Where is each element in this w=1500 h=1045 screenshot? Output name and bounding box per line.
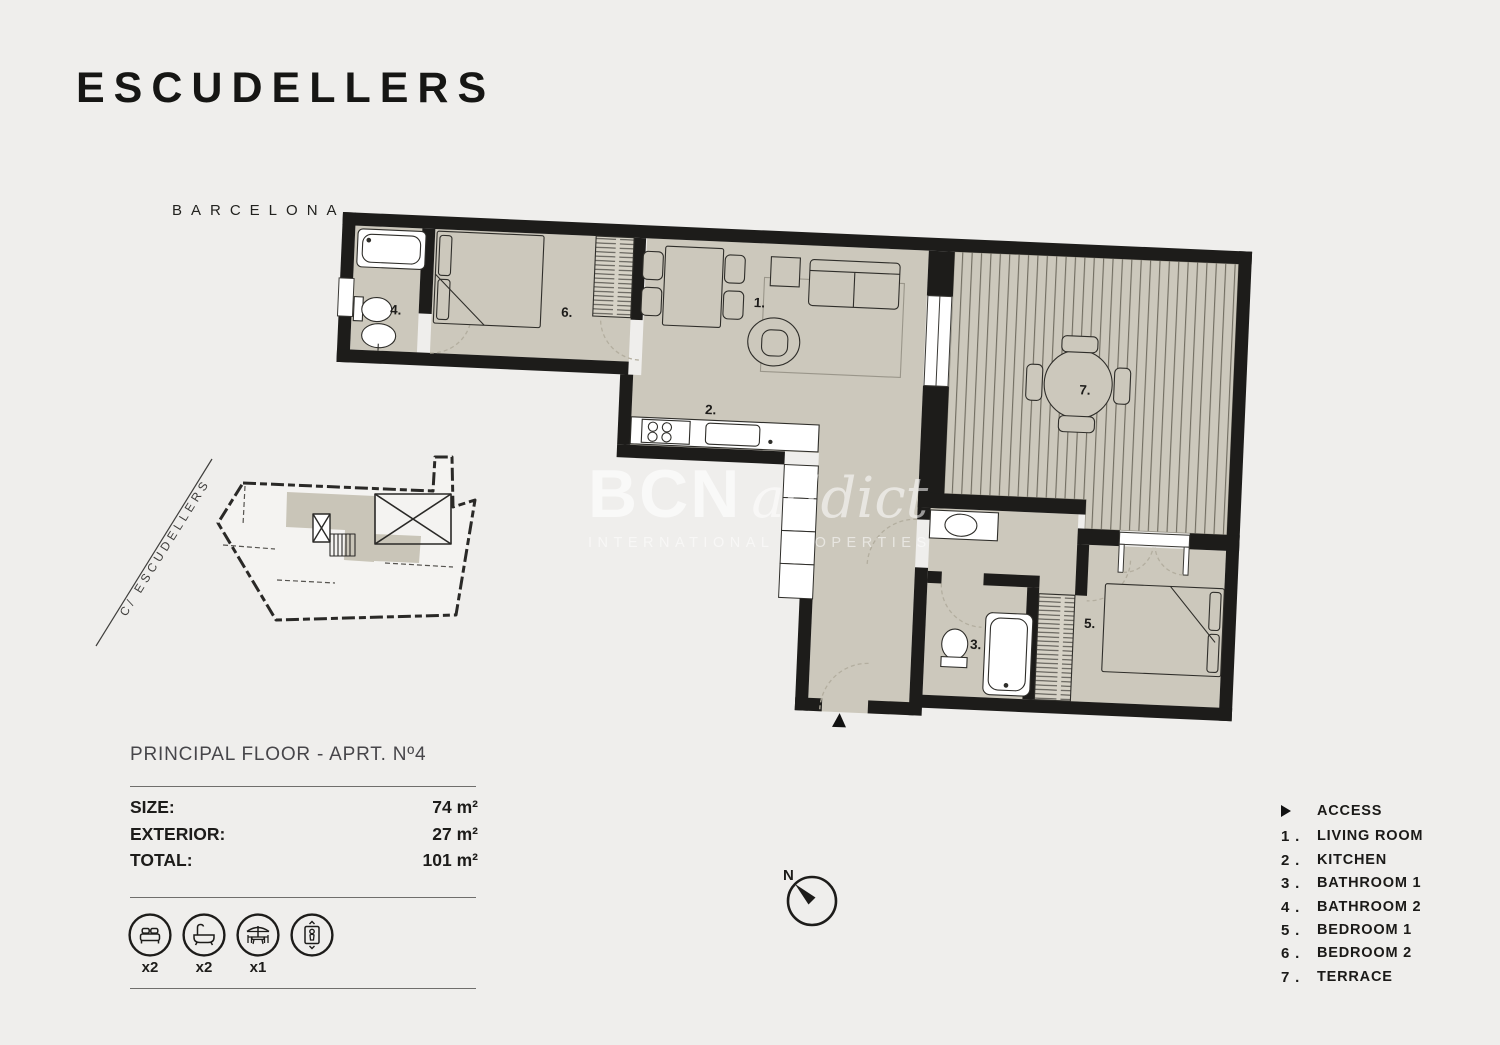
hall-vanity — [929, 510, 998, 541]
room-label-bathroom1: 3. — [970, 637, 982, 652]
compass: N — [783, 867, 836, 925]
chair — [1058, 415, 1095, 433]
chair — [1025, 364, 1043, 401]
dining-table — [662, 246, 723, 327]
north-label: N — [783, 867, 794, 884]
main-floorplan: 1. 2. 3. 4. 5. 6. 7. — [320, 212, 1252, 744]
room-label-bathroom2: 4. — [390, 302, 402, 317]
kitchen-sink — [705, 423, 760, 446]
street-reference: C/ ESCUDELLERS — [96, 459, 213, 646]
chair — [1062, 335, 1099, 353]
chair — [724, 255, 745, 284]
room-label-bedroom1: 5. — [1084, 616, 1096, 631]
room-label-living: 1. — [753, 295, 765, 310]
toilet-bowl — [941, 629, 968, 660]
floorplan-canvas: C/ ESCUDELLERS — [0, 0, 1500, 1045]
access-arrow — [832, 713, 847, 728]
chair — [1113, 368, 1131, 405]
street-label: C/ ESCUDELLERS — [117, 476, 213, 619]
bed — [1102, 584, 1225, 677]
chair — [723, 291, 744, 320]
chair — [641, 287, 662, 316]
room-label-bedroom2: 6. — [561, 305, 573, 320]
chair — [642, 251, 663, 280]
wardrobe — [593, 236, 634, 318]
wardrobe — [1034, 594, 1075, 701]
side-table — [770, 257, 800, 287]
elevator-shaft — [313, 514, 330, 542]
corridor-cabinets — [779, 464, 819, 598]
room-label-kitchen: 2. — [705, 402, 717, 417]
toilet-tank — [941, 657, 967, 668]
room-label-terrace: 7. — [1079, 382, 1091, 397]
bedroom2-furniture — [433, 229, 634, 332]
compass-needle — [795, 884, 816, 905]
building-locator-plan — [218, 457, 475, 620]
apartment-highlight-2 — [374, 534, 421, 563]
